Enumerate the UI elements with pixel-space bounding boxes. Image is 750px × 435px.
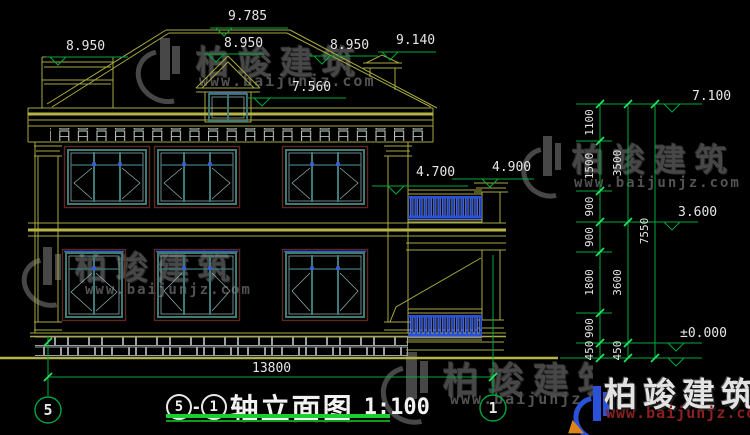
window-1f-1 (63, 250, 126, 321)
title-underline-thick (166, 414, 390, 418)
dormer-window (209, 93, 247, 121)
mark-zero-level: ±0.000 (680, 326, 727, 341)
window-2f-2 (155, 147, 240, 208)
dim-900a: 900 (583, 197, 596, 217)
dim-450b: 450 (611, 341, 624, 361)
pilaster-right (384, 146, 412, 330)
dentil-row (50, 128, 424, 141)
right-dimension-chain-labels: 1100 1500 900 900 1800 900 450 3500 3600… (583, 109, 651, 360)
window-1f-3 (283, 250, 368, 321)
balcony-railing (408, 196, 482, 220)
dim-1800: 1800 (583, 269, 596, 296)
mark-roof-right: 8.950 (330, 38, 369, 53)
porch-diagonal (390, 258, 481, 322)
pilaster-left (34, 146, 62, 330)
dim-900c: 900 (583, 318, 596, 338)
mark-left-parapet: 8.950 (66, 39, 105, 54)
title-underline-thin (166, 420, 390, 422)
mark-dormer-eave: 7.560 (292, 80, 331, 95)
floor-band (28, 223, 506, 250)
mark-balcony-rail: 4.700 (416, 165, 455, 180)
windows (63, 93, 368, 321)
mark-second-floor: 3.600 (678, 205, 717, 220)
watermark-url: www.baijunjz.com (606, 404, 750, 422)
wall-edges (35, 142, 408, 333)
window-1f-2 (155, 250, 240, 321)
dim-overall-width: 13800 (252, 361, 291, 376)
porch-railing (408, 315, 482, 338)
window-2f-3 (283, 147, 368, 208)
dim-1500: 1500 (583, 153, 596, 180)
dim-3600: 3600 (611, 269, 624, 296)
dim-450a: 450 (583, 341, 596, 361)
chimney (363, 55, 402, 90)
axis-bubble-left: 5 (43, 401, 52, 419)
mark-chimney-top: 9.140 (396, 33, 435, 48)
mark-ridge: 9.785 (228, 9, 267, 24)
mark-dormer-ridge: 8.950 (224, 36, 263, 51)
dim-3500: 3500 (611, 150, 624, 177)
window-2f-1 (65, 147, 150, 208)
elevation-mark-labels: 8.950 9.785 8.950 8.950 9.140 7.560 4.70… (66, 9, 731, 341)
dim-1100: 1100 (583, 109, 596, 136)
mark-balcony-pillar: 4.900 (492, 160, 531, 175)
dim-900b: 900 (583, 227, 596, 247)
stone-base (35, 337, 408, 358)
mark-right-eave: 7.100 (692, 89, 731, 104)
building-linework (0, 30, 558, 358)
dim-7550: 7550 (638, 218, 651, 245)
cad-elevation-screenshot: 柏竣建筑 www.baijunjz.com 柏竣建筑 www.baijunjz.… (0, 0, 750, 435)
axis-bubble-right: 1 (488, 399, 497, 417)
